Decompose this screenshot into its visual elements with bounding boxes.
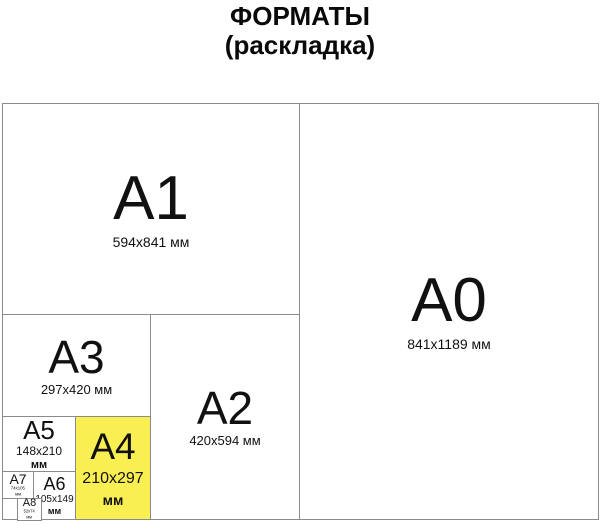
format-unit-a5: мм [31, 459, 47, 471]
format-cell-a1: A1 594x841 мм [3, 104, 299, 314]
page-title: ФОРМАТЫ (раскладка) [0, 2, 600, 60]
paper-formats-diagram: A1 594x841 мм A0 841x1189 мм A3 297x420 … [2, 103, 599, 520]
format-cell-a3: A3 297x420 мм [3, 315, 150, 416]
format-dims-a8: 52x74 [24, 510, 35, 514]
format-unit-a7: мм [15, 493, 21, 497]
format-dims-a3: 297x420 мм [41, 383, 112, 398]
format-label-a5: A5 [23, 417, 55, 443]
format-label-a3: A3 [48, 334, 104, 380]
format-dims-a5: 148x210 [16, 445, 62, 459]
format-dims-a4: 210x297 [82, 470, 143, 488]
format-cell-a0: A0 841x1189 мм [300, 104, 598, 519]
format-cell-a5: A5 148x210 мм [3, 417, 75, 471]
divider-a3-bottom [3, 416, 150, 417]
divider-a3-a2 [150, 314, 151, 519]
divider-a5-bottom [3, 471, 75, 472]
format-dims-a0: 841x1189 мм [407, 336, 491, 352]
format-unit-a8: мм [27, 516, 33, 520]
format-label-a4: A4 [90, 428, 135, 465]
format-label-a0: A0 [411, 270, 487, 332]
divider-a0-left [299, 104, 300, 519]
format-cell-a4: A4 210x297 мм [76, 417, 150, 519]
format-label-a6: A6 [43, 475, 65, 493]
title-line-2: (раскладка) [0, 31, 600, 60]
format-unit-a4: мм [103, 492, 124, 508]
divider-a5-a4 [75, 416, 76, 519]
format-cell-a8: A8 52x74 мм [17, 498, 42, 521]
format-dims-a7: 74x105 [11, 487, 25, 491]
format-label-a7: A7 [9, 472, 26, 486]
format-cell-a2: A2 420x594 мм [151, 315, 299, 519]
title-line-1: ФОРМАТЫ [0, 2, 600, 31]
format-cell-a7: A7 74x105 мм [3, 472, 33, 498]
divider-a1-bottom [3, 314, 300, 315]
format-label-a8: A8 [23, 498, 36, 509]
format-label-a2: A2 [197, 385, 253, 431]
format-label-a1: A1 [113, 168, 189, 230]
format-unit-a6: мм [48, 506, 61, 516]
format-dims-a2: 420x594 мм [189, 434, 260, 449]
format-dims-a1: 594x841 мм [113, 234, 190, 250]
